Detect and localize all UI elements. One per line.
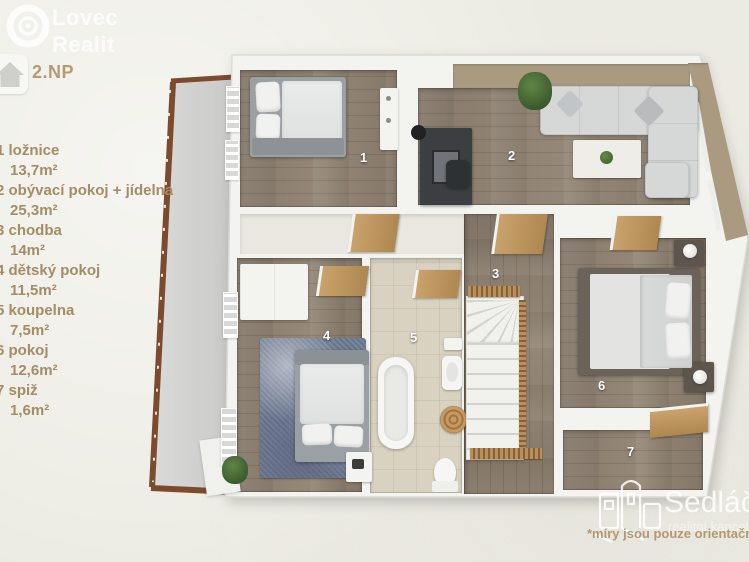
lamp [683, 244, 697, 258]
bed-pillow [255, 81, 281, 112]
room-label-7: 7 [627, 444, 634, 459]
door-room-1 [347, 214, 399, 252]
legend-item: 3 chodba14m² [0, 221, 186, 261]
room-legend: 1 ložnice13,7m² 2 obývací pokoj + jídeln… [0, 141, 186, 421]
legend-room-name: 6 pokoj [0, 341, 186, 361]
floor-selector-tile[interactable] [0, 54, 28, 94]
lovec-realit-logo-icon [4, 2, 52, 50]
rattan-stool [440, 406, 467, 433]
legend-room-area: 14m² [0, 241, 186, 261]
plant-icon [518, 72, 552, 110]
table-plant-icon [600, 151, 613, 164]
legend-room-area: 7,5m² [0, 321, 186, 341]
legend-room-area: 25,3m² [0, 201, 186, 221]
stair-railing-side [519, 300, 526, 450]
sink-basin [446, 362, 458, 382]
legend-room-name: 1 ložnice [0, 141, 186, 161]
legend-room-area: 1,6m² [0, 401, 186, 421]
bed-pillow [333, 425, 363, 447]
room-label-4: 4 [323, 328, 330, 343]
window [225, 140, 239, 180]
window [223, 292, 238, 338]
legend-item: 4 dětský pokoj11,5m² [0, 261, 186, 301]
cabinet-knob [386, 118, 391, 123]
door-room-5 [412, 270, 461, 298]
legend-room-name: 7 spiž [0, 381, 186, 401]
desk-lamp [411, 125, 426, 140]
bed-pillow [665, 282, 691, 320]
bathroom-shelf [444, 338, 462, 350]
bathtub-basin [384, 365, 408, 441]
bed-duvet [300, 364, 364, 424]
room-label-2: 2 [508, 148, 515, 163]
toilet-tank [432, 481, 458, 492]
staircase-winder [466, 296, 524, 344]
window [226, 86, 240, 132]
legend-room-area: 11,5m² [0, 281, 186, 301]
nightstand-item [352, 459, 364, 469]
bed-pillow [256, 114, 281, 141]
door-room-6 [610, 216, 662, 250]
bed-duvet [282, 81, 342, 141]
legend-room-name: 2 obývací pokoj + jídelna [0, 181, 186, 201]
bed-footboard [252, 138, 344, 155]
stair-railing-top [468, 286, 520, 297]
legend-item: 2 obývací pokoj + jídelna25,3m² [0, 181, 186, 221]
legend-room-name: 3 chodba [0, 221, 186, 241]
home-icon [0, 54, 28, 94]
room-label-1: 1 [360, 150, 367, 165]
door-room-5-top [491, 214, 548, 254]
sofa-ottoman [645, 162, 689, 198]
staircase [466, 342, 524, 460]
legend-item: 7 spiž1,6m² [0, 381, 186, 421]
floor-label: 2.NP [32, 62, 74, 83]
stair-railing-bottom [470, 448, 542, 459]
legend-room-name: 4 dětský pokoj [0, 261, 186, 281]
plant-icon [222, 456, 248, 484]
legend-room-area: 13,7m² [0, 161, 186, 181]
room-label-5: 5 [410, 330, 417, 345]
room-label-6: 6 [598, 378, 605, 393]
legend-item: 1 ložnice13,7m² [0, 141, 186, 181]
legend-room-name: 5 koupelna [0, 301, 186, 321]
measurements-disclaimer: *míry jsou pouze orientační [587, 526, 749, 541]
accent-wall-top [453, 64, 690, 88]
cabinet-knob [386, 96, 391, 101]
legend-item: 6 pokoj12,6m² [0, 341, 186, 381]
legend-item: 5 koupelna7,5m² [0, 301, 186, 341]
sedlacek-brand-text: Sedláček [664, 486, 749, 520]
door-room-7 [650, 403, 708, 438]
room-label-3: 3 [492, 266, 499, 281]
bed-headboard [295, 350, 369, 365]
bed-pillow [665, 322, 691, 359]
office-chair [446, 160, 470, 188]
wardrobe [240, 264, 308, 320]
lamp [693, 370, 707, 384]
door-room-4 [316, 266, 369, 296]
bed-pillow [302, 423, 333, 445]
legend-room-area: 12,6m² [0, 361, 186, 381]
